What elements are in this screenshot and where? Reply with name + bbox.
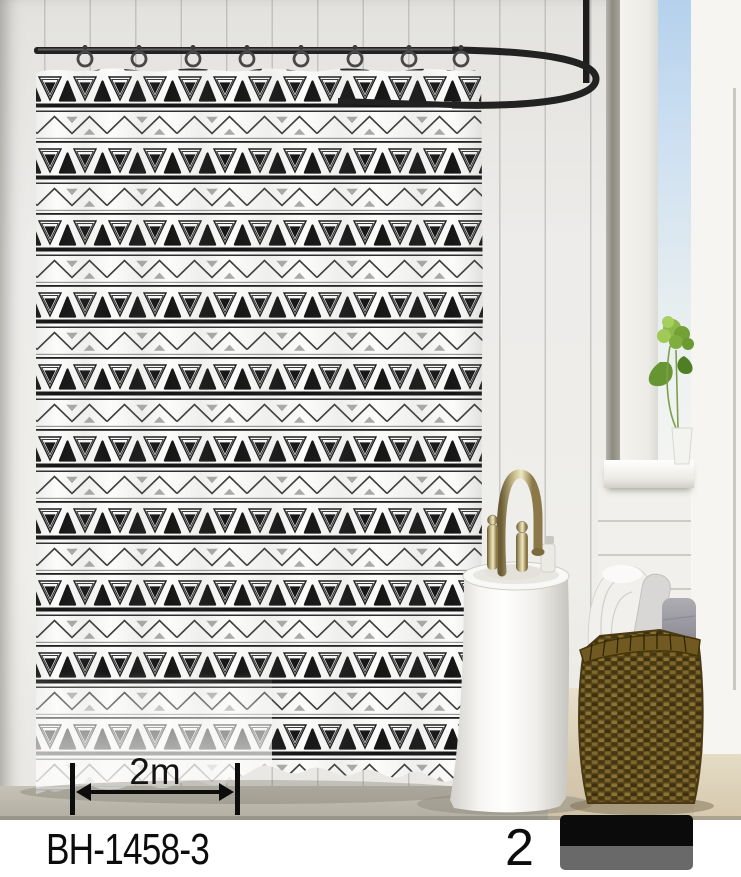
wicker-basket: [579, 630, 703, 803]
product-image: 2m BH-1458-3 2: [0, 0, 741, 877]
bathroom-photo: 2m: [0, 0, 741, 820]
green-plant: [649, 316, 694, 464]
quantity: 2: [505, 816, 534, 873]
vase: [672, 428, 692, 464]
foreground-objects: [0, 0, 741, 820]
width-measurement: 2m: [70, 763, 240, 815]
color-swatch: [560, 815, 693, 870]
pedestal-basin: [450, 562, 569, 812]
width-label: 2m: [70, 751, 240, 793]
swatch-gray: [560, 846, 693, 870]
swatch-black: [560, 815, 693, 846]
caption-bar: BH-1458-3 2: [0, 820, 741, 877]
product-code: BH-1458-3: [46, 820, 209, 877]
